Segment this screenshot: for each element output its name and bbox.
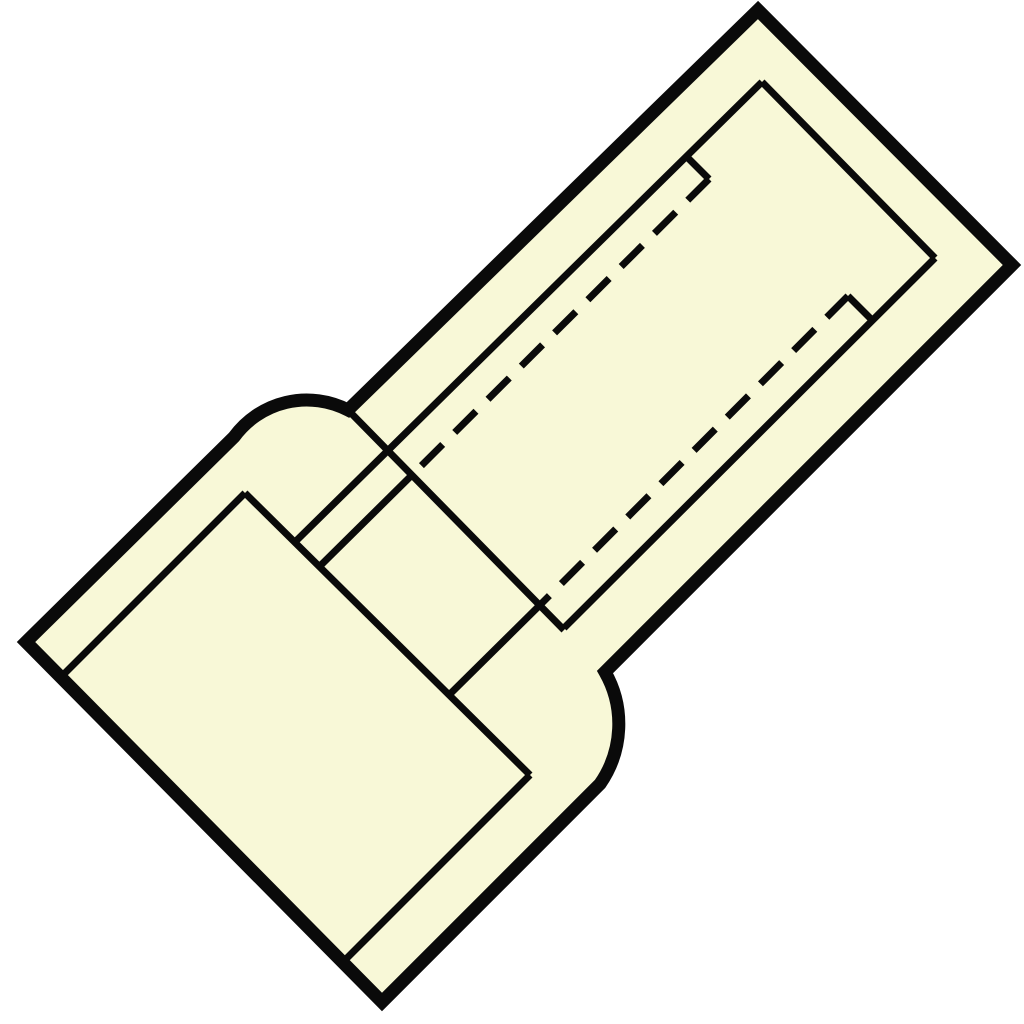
connector-illustration	[0, 0, 1024, 1024]
connector-body-outline	[26, 10, 1012, 1002]
illustration-canvas	[0, 0, 1024, 1024]
